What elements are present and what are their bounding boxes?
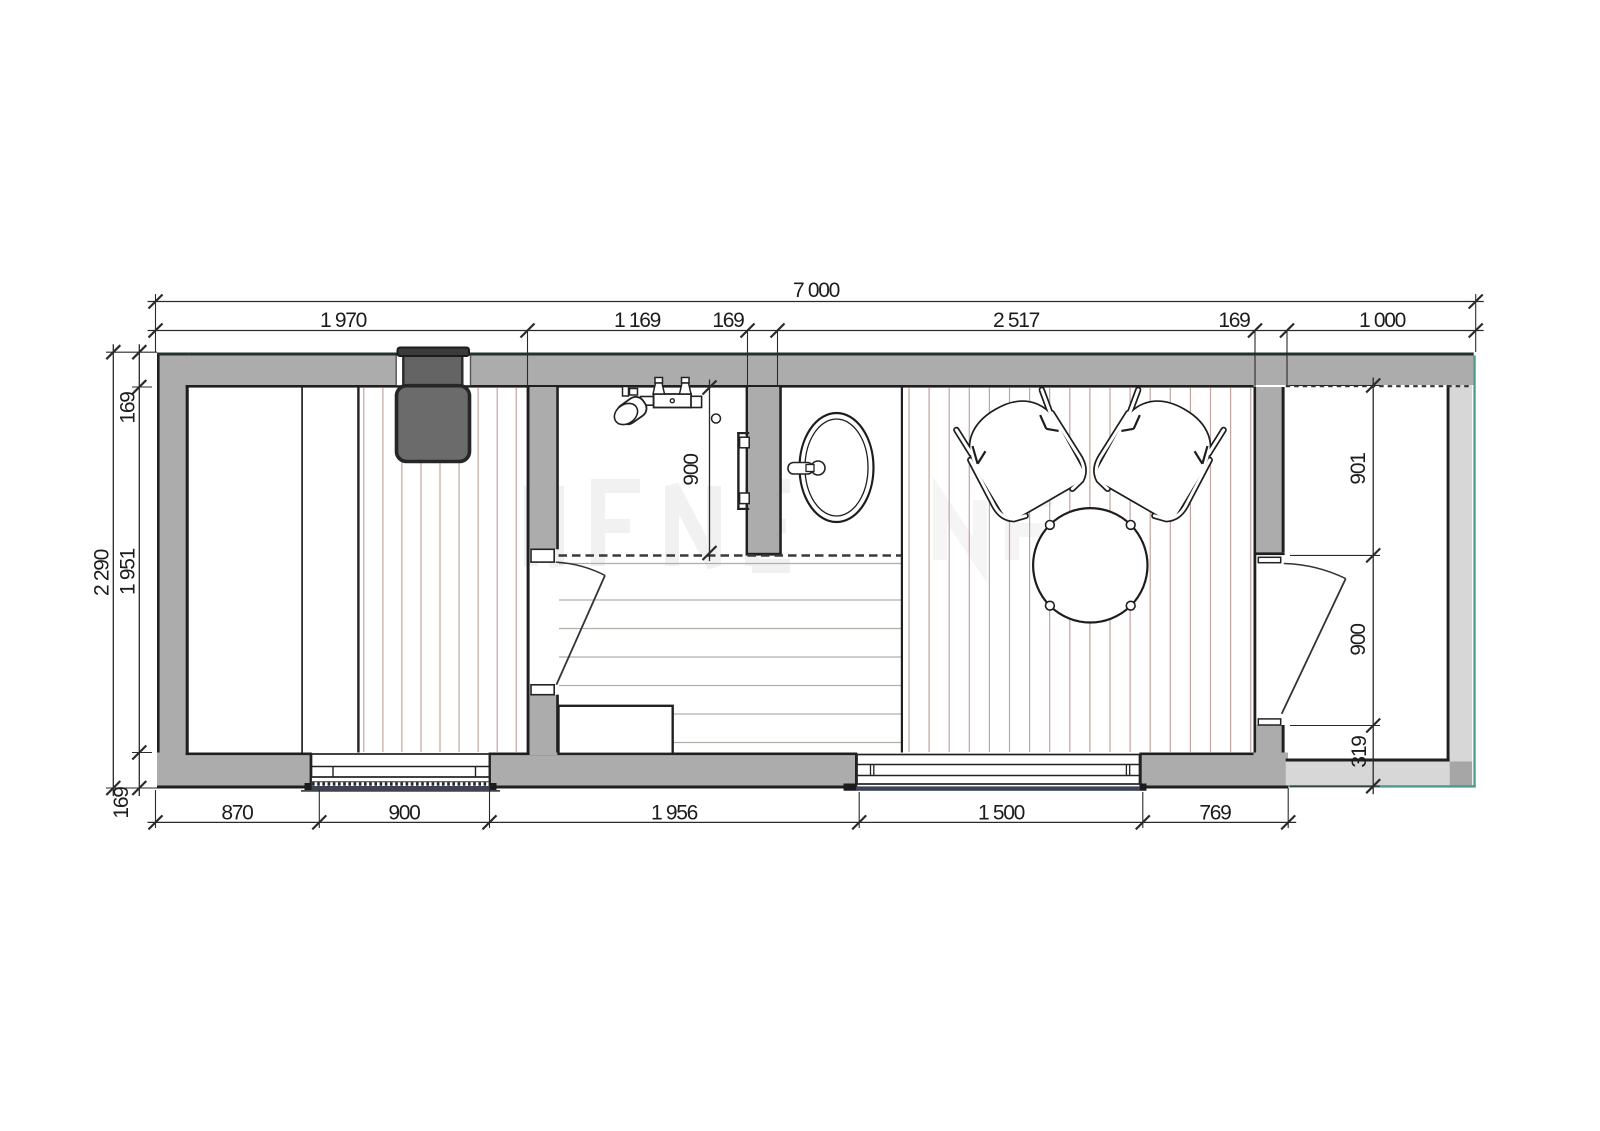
svg-text:2 290: 2 290 (91, 549, 114, 596)
svg-text:900: 900 (388, 802, 420, 825)
svg-text:1 951: 1 951 (117, 548, 140, 595)
svg-text:1 000: 1 000 (1359, 309, 1406, 332)
svg-text:169: 169 (117, 392, 140, 424)
svg-text:169: 169 (1218, 309, 1250, 332)
svg-text:169: 169 (712, 309, 744, 332)
svg-text:870: 870 (221, 802, 253, 825)
svg-text:1 970: 1 970 (320, 309, 367, 332)
svg-text:900: 900 (1347, 624, 1370, 656)
svg-text:1 956: 1 956 (651, 802, 698, 825)
svg-text:901: 901 (1347, 453, 1370, 485)
svg-text:1 169: 1 169 (614, 309, 661, 332)
svg-text:319: 319 (1348, 736, 1371, 768)
svg-text:1 500: 1 500 (978, 802, 1025, 825)
svg-text:169: 169 (110, 787, 133, 819)
svg-text:769: 769 (1199, 802, 1231, 825)
svg-text:7 000: 7 000 (793, 279, 840, 302)
svg-text:900: 900 (680, 454, 703, 486)
svg-text:2 517: 2 517 (993, 309, 1040, 332)
